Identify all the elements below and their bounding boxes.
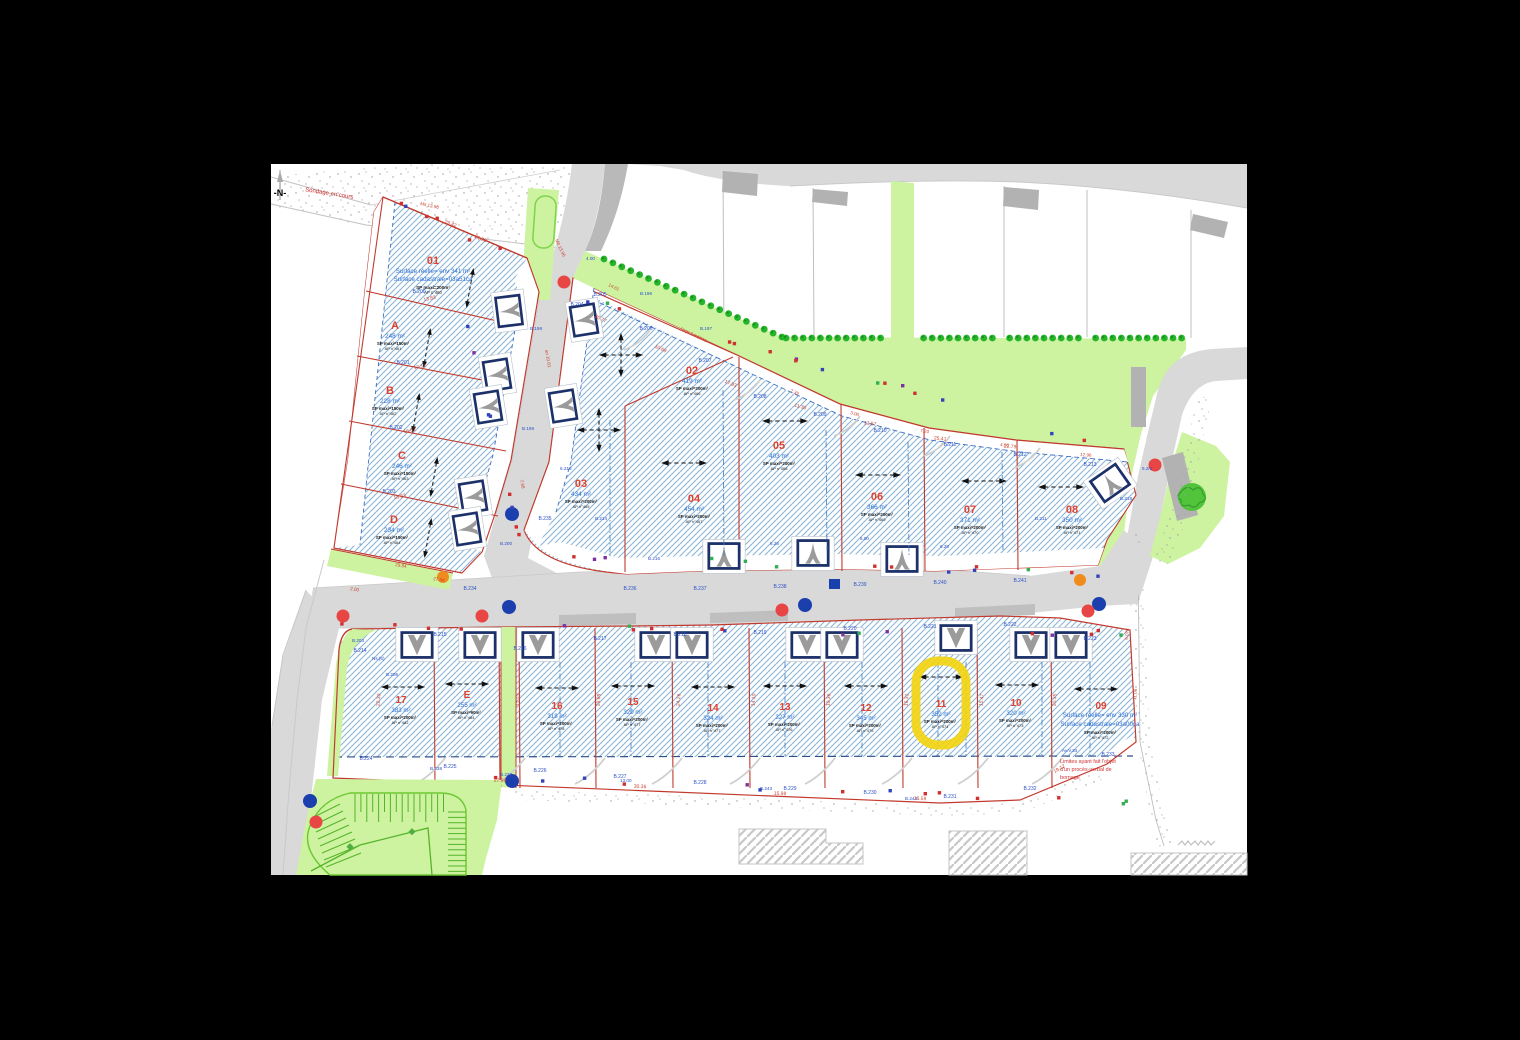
svg-text:AP n°472: AP n°472	[1092, 735, 1110, 740]
svg-text:AP n°475: AP n°475	[857, 728, 875, 733]
svg-text:AP n°467: AP n°467	[686, 519, 704, 524]
svg-text:13.00: 13.00	[620, 778, 632, 783]
svg-text:12.27: 12.27	[515, 693, 522, 706]
svg-text:Av.V.34: Av.V.34	[1062, 748, 1078, 753]
svg-text:AP n°478: AP n°478	[548, 726, 566, 731]
svg-text:B.200: B.200	[412, 289, 425, 295]
svg-text:B.209: B.209	[813, 412, 826, 418]
svg-text:11: 11	[936, 699, 947, 710]
svg-text:07: 07	[964, 504, 976, 516]
svg-text:B.204: B.204	[570, 302, 583, 308]
svg-text:B.198: B.198	[530, 326, 542, 331]
svg-text:15.47: 15.47	[978, 693, 985, 706]
svg-text:B.205: B.205	[593, 292, 606, 298]
svg-text:08: 08	[1066, 504, 1078, 516]
svg-text:4.00: 4.00	[1000, 442, 1010, 448]
svg-text:12.96: 12.96	[1080, 452, 1092, 458]
svg-text:6.2m: 6.2m	[1142, 466, 1152, 471]
svg-text:B.213: B.213	[1083, 462, 1096, 468]
svg-text:AP n°465: AP n°465	[573, 504, 591, 509]
svg-text:05: 05	[773, 440, 785, 452]
svg-text:AP n°474: AP n°474	[932, 724, 950, 729]
svg-text:419 m²: 419 m²	[682, 378, 702, 385]
svg-text:B.199: B.199	[522, 426, 534, 431]
svg-text:B.237: B.237	[500, 772, 512, 777]
svg-text:AP n°473: AP n°473	[1007, 723, 1025, 728]
svg-text:B.218: B.218	[1120, 496, 1132, 501]
svg-text:246 m²: 246 m²	[392, 463, 412, 470]
svg-text:4.00: 4.00	[586, 256, 595, 261]
svg-text:B.216: B.216	[513, 646, 526, 652]
svg-text:B.215: B.215	[433, 632, 446, 638]
svg-text:B.197: B.197	[700, 326, 712, 331]
svg-text:11.06: 11.06	[1132, 688, 1138, 700]
svg-text:B.211: B.211	[1035, 516, 1047, 521]
svg-text:352 m²: 352 m²	[931, 711, 950, 718]
svg-text:B.235: B.235	[538, 516, 551, 522]
svg-text:d'un procès-verbal de: d'un procès-verbal de	[1060, 767, 1112, 773]
svg-text:AP n°471: AP n°471	[1064, 530, 1082, 535]
svg-text:6.218: 6.218	[560, 466, 572, 471]
svg-text:B.203: B.203	[352, 638, 364, 643]
svg-text:255 m²: 255 m²	[457, 702, 476, 709]
svg-text:B.203: B.203	[382, 489, 395, 495]
svg-text:383 m²: 383 m²	[391, 707, 410, 714]
svg-text:E: E	[464, 690, 471, 701]
svg-text:B.212: B.212	[1013, 452, 1026, 458]
svg-text:15: 15	[627, 697, 639, 708]
svg-text:B.214: B.214	[595, 516, 607, 521]
svg-text:B.230: B.230	[863, 790, 876, 796]
svg-text:B.225: B.225	[443, 764, 456, 770]
svg-text:B.196: B.196	[640, 291, 652, 296]
svg-text:454 m²: 454 m²	[684, 506, 704, 513]
svg-text:B.220: B.220	[843, 626, 856, 632]
svg-text:234 m²: 234 m²	[384, 527, 404, 534]
svg-text:318 m²: 318 m²	[547, 713, 566, 720]
svg-text:B.238: B.238	[773, 584, 786, 590]
svg-text:B.238: B.238	[430, 766, 442, 771]
svg-text:B.234: B.234	[463, 586, 476, 592]
svg-text:B.239: B.239	[853, 582, 866, 588]
svg-text:01: 01	[427, 255, 439, 267]
svg-text:Surface cadastrale=03a51ca: Surface cadastrale=03a51ca	[394, 276, 474, 283]
svg-text:AP n°484: AP n°484	[458, 715, 476, 720]
svg-text:15.98: 15.98	[774, 791, 787, 797]
svg-text:06: 06	[871, 491, 883, 503]
svg-text:6.28: 6.28	[770, 541, 779, 546]
svg-text:-N-: -N-	[274, 188, 287, 198]
svg-text:B.211: B.211	[944, 442, 957, 448]
svg-text:AP n°477: AP n°477	[624, 722, 642, 727]
svg-text:B.224: B.224	[359, 756, 372, 762]
svg-text:327 m²: 327 m²	[775, 714, 794, 721]
svg-text:350 m²: 350 m²	[1062, 517, 1082, 524]
svg-text:B.241: B.241	[1013, 578, 1026, 584]
svg-text:B.201: B.201	[396, 360, 409, 366]
svg-text:16: 16	[551, 701, 563, 712]
svg-text:B.200: B.200	[500, 541, 512, 546]
svg-text:B.222: B.222	[1003, 622, 1016, 628]
svg-text:27.96: 27.96	[494, 778, 507, 784]
svg-text:434 m²: 434 m²	[571, 491, 591, 498]
svg-text:Surface réelle= env 341 m²: Surface réelle= env 341 m²	[396, 268, 470, 275]
svg-text:24.26: 24.26	[675, 693, 682, 706]
svg-text:B.232: B.232	[1023, 786, 1036, 792]
svg-text:29.89: 29.89	[595, 693, 602, 706]
svg-text:B.244: B.244	[905, 796, 917, 801]
svg-text:AP n°477: AP n°477	[704, 728, 722, 733]
svg-text:Surface réelle= env 330 m²: Surface réelle= env 330 m²	[1063, 712, 1137, 719]
svg-text:AP n°469: AP n°469	[869, 517, 887, 522]
svg-text:B.223: B.223	[1083, 636, 1096, 642]
svg-text:B.221: B.221	[923, 624, 936, 630]
svg-text:320 m²: 320 m²	[1006, 710, 1025, 717]
svg-text:17: 17	[395, 695, 407, 706]
svg-text:B.240: B.240	[933, 580, 946, 586]
svg-text:AP n°463: AP n°463	[392, 476, 410, 481]
svg-text:B.207: B.207	[698, 358, 711, 364]
svg-text:20.35: 20.35	[1051, 693, 1058, 706]
svg-text:AP n°482: AP n°482	[392, 720, 410, 725]
svg-text:248 m²: 248 m²	[385, 333, 405, 340]
svg-text:B.243: B.243	[760, 786, 772, 791]
svg-text:228 m²: 228 m²	[380, 398, 400, 405]
svg-text:AP n°461: AP n°461	[385, 346, 403, 351]
svg-text:B.214: B.214	[353, 648, 366, 654]
svg-text:9.078: 9.078	[1124, 628, 1130, 640]
svg-text:B.231: B.231	[943, 794, 956, 800]
svg-text:320 m²: 320 m²	[623, 709, 642, 716]
svg-text:B.208: B.208	[753, 394, 766, 400]
svg-text:B.226: B.226	[533, 768, 546, 774]
svg-text:D: D	[390, 514, 398, 526]
svg-text:03: 03	[575, 478, 587, 490]
svg-text:AP n°466: AP n°466	[684, 391, 702, 396]
svg-text:B.206: B.206	[639, 326, 652, 332]
svg-text:13: 13	[779, 702, 791, 713]
svg-text:04: 04	[688, 493, 701, 505]
svg-text:345 m²: 345 m²	[856, 715, 875, 722]
svg-text:AP n°468: AP n°468	[771, 466, 789, 471]
svg-text:02: 02	[686, 365, 698, 377]
svg-text:14.10: 14.10	[750, 693, 757, 706]
svg-text:B.202: B.202	[389, 425, 402, 431]
svg-text:6.28: 6.28	[940, 544, 949, 549]
svg-text:10: 10	[1010, 698, 1022, 709]
svg-text:C: C	[398, 450, 406, 462]
svg-text:B.233: B.233	[1101, 752, 1114, 758]
svg-text:B: B	[386, 385, 394, 397]
svg-text:12: 12	[860, 703, 872, 714]
svg-text:Limites ayant fait l'objet: Limites ayant fait l'objet	[1060, 759, 1116, 765]
svg-text:B.218: B.218	[673, 632, 686, 638]
svg-text:B.216: B.216	[648, 556, 660, 561]
svg-text:B.228: B.228	[693, 780, 706, 786]
svg-text:Surface cadastrale=03a00ca: Surface cadastrale=03a00ca	[1061, 721, 1141, 728]
svg-text:A: A	[391, 320, 399, 332]
svg-text:AP n°476: AP n°476	[776, 727, 794, 732]
svg-text:09: 09	[1095, 701, 1107, 712]
svg-text:B.236: B.236	[623, 586, 636, 592]
svg-text:5.00: 5.00	[860, 536, 869, 541]
svg-text:B.217: B.217	[593, 636, 606, 642]
svg-text:B.237: B.237	[693, 586, 706, 592]
svg-text:324 m²: 324 m²	[703, 715, 722, 722]
svg-text:22.30: 22.30	[375, 693, 382, 706]
svg-text:403 m²: 403 m²	[769, 453, 789, 460]
svg-text:bornage: bornage	[1060, 775, 1080, 781]
svg-text:B.210: B.210	[873, 428, 886, 434]
svg-text:AP n°470: AP n°470	[962, 530, 980, 535]
svg-text:14: 14	[707, 703, 719, 714]
svg-text:B.206: B.206	[386, 672, 398, 677]
svg-text:Ns.(6): Ns.(6)	[372, 656, 385, 661]
svg-text:10.36: 10.36	[825, 693, 832, 706]
svg-text:B.219: B.219	[753, 630, 766, 636]
svg-text:371 m²: 371 m²	[960, 517, 980, 524]
svg-text:30.36: 30.36	[634, 784, 647, 790]
svg-text:AP n°464: AP n°464	[384, 540, 402, 545]
svg-text:16.31: 16.31	[903, 693, 910, 706]
svg-text:366 m²: 366 m²	[867, 504, 887, 511]
svg-text:AP n°462: AP n°462	[380, 411, 398, 416]
